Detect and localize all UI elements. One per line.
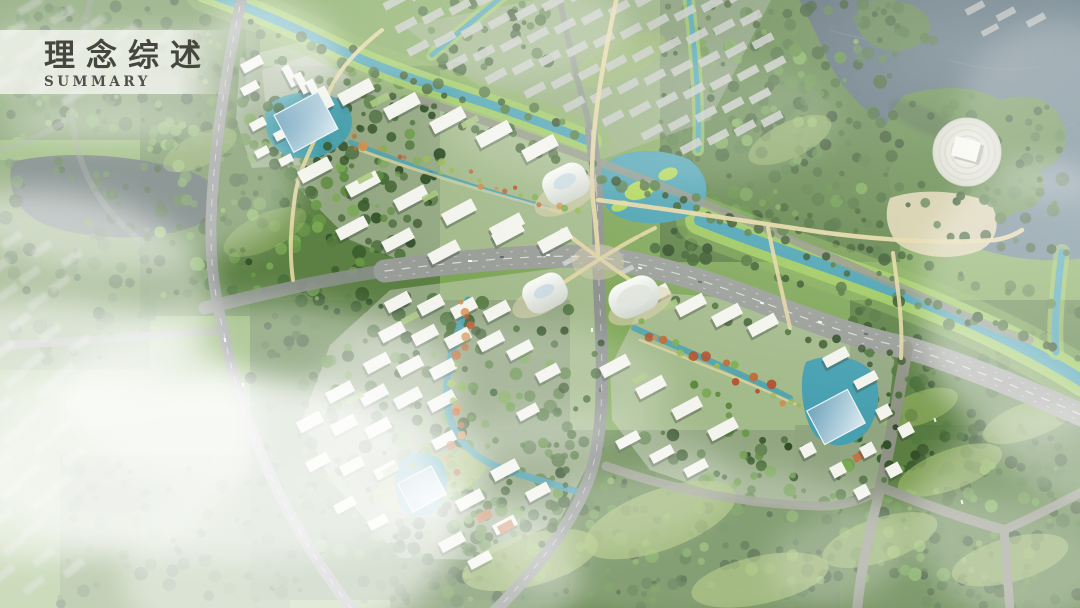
- slide-canvas: 理念综述 SUMMARY: [0, 0, 1080, 608]
- page-subtitle: SUMMARY: [44, 74, 246, 90]
- slide-title-banner: 理念综述 SUMMARY: [0, 30, 246, 94]
- page-title: 理念综述: [44, 39, 246, 73]
